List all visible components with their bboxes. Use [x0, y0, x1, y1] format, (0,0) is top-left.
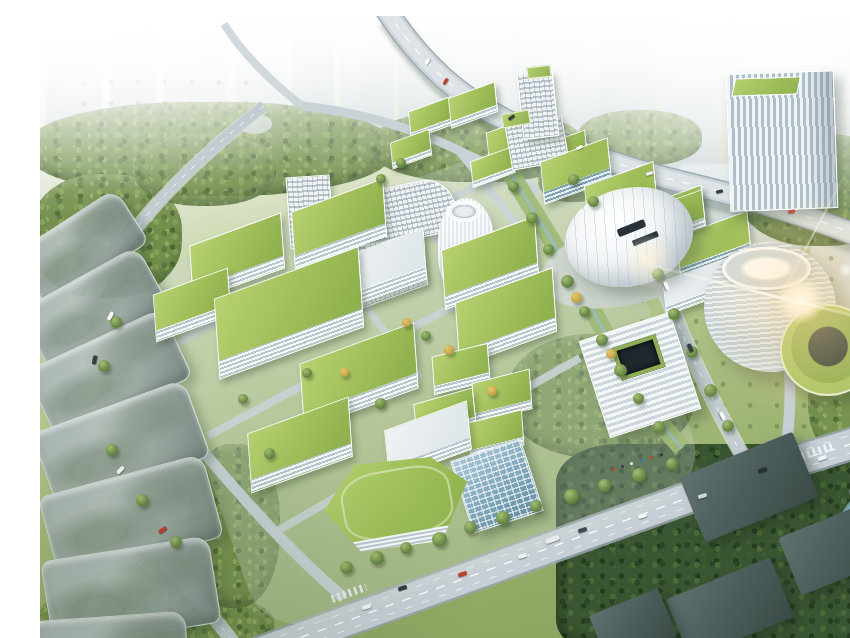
pedestrian — [630, 462, 633, 465]
glass-slab-green-roof — [676, 210, 752, 281]
ghost-tower — [164, 42, 226, 170]
tree — [370, 551, 384, 565]
office-slab — [663, 254, 740, 316]
highway-inner — [386, 16, 850, 252]
dome-hall — [554, 174, 704, 301]
green-roof-office — [153, 267, 232, 342]
green-roof-pod — [390, 128, 432, 169]
tree — [264, 448, 275, 459]
tree — [614, 364, 627, 377]
boulevard-median-line — [216, 430, 850, 638]
tree — [633, 393, 644, 404]
linear-park — [506, 166, 682, 448]
tree — [136, 494, 149, 507]
green-roof-office — [247, 396, 353, 493]
trees-bottom-left — [40, 588, 274, 638]
hexagonal-lawn-building — [317, 446, 476, 560]
car — [818, 455, 828, 462]
tree — [432, 532, 447, 547]
tree — [579, 306, 590, 317]
car — [578, 527, 588, 534]
forest-band-east — [738, 134, 850, 246]
park-stream — [506, 166, 682, 448]
ghost-tower — [810, 224, 850, 372]
massing-slab — [40, 535, 222, 638]
highway-shadow — [390, 19, 850, 261]
tree — [106, 444, 118, 456]
car — [458, 571, 468, 578]
autumn-tree — [606, 349, 616, 359]
folded-pavilion — [432, 343, 491, 396]
skyline-layer — [40, 16, 850, 638]
car — [638, 513, 648, 520]
sun-core — [776, 276, 824, 324]
boulevard-lane-line — [219, 438, 850, 638]
aerial-render: Aerial rendering of an eco science-busin… — [40, 16, 850, 638]
ghost-tower — [110, 20, 156, 166]
ghost-tower — [560, 50, 606, 142]
pedestrian — [612, 468, 615, 471]
ghost-tower — [340, 46, 394, 152]
east-road — [650, 252, 746, 462]
glass-slab-green-roof — [584, 161, 658, 231]
canal — [804, 440, 850, 574]
terrace-lawn — [501, 110, 531, 129]
tree — [376, 174, 386, 184]
residential-slab — [336, 238, 429, 316]
autumn-tree — [402, 318, 411, 327]
stepped-tower — [517, 70, 560, 139]
trees-north-dome — [538, 158, 608, 202]
ghost-tower — [398, 30, 448, 148]
pedestrian — [660, 453, 663, 456]
green-roof-office — [299, 322, 418, 430]
crosswalk — [332, 587, 366, 599]
forest-road — [224, 24, 302, 106]
intersection-north-arm — [784, 354, 790, 464]
tree — [722, 420, 734, 432]
canal-bank — [804, 440, 850, 574]
tree — [704, 384, 717, 397]
lens-flare-streak — [779, 164, 850, 297]
forest-highway-north — [578, 110, 702, 166]
boulevard-casing — [216, 430, 850, 638]
elliptical-tower — [438, 198, 494, 298]
tree — [632, 468, 646, 482]
green-roof-pod — [448, 81, 498, 129]
bus — [545, 535, 561, 545]
car — [646, 171, 654, 176]
ghost-tower — [46, 46, 102, 164]
lens-flare-streak — [641, 262, 850, 326]
sun-glow — [692, 190, 850, 420]
massing-slab — [40, 188, 150, 308]
forest-left-mid — [134, 134, 276, 206]
southwest-branch-road — [70, 536, 136, 638]
ghost-tower — [236, 56, 288, 160]
car — [788, 209, 795, 213]
terrain-layer — [40, 16, 850, 638]
green-roof-pod — [540, 129, 588, 174]
car — [518, 553, 528, 560]
crosswalk — [796, 446, 834, 458]
car — [92, 355, 98, 365]
ghost-tower — [740, 194, 800, 324]
buildings-layer — [40, 16, 850, 638]
car — [442, 78, 448, 86]
autumn-tree — [571, 292, 582, 303]
dome-highlight — [618, 230, 680, 292]
green-roof-pod — [486, 114, 540, 165]
tree — [496, 511, 510, 525]
courtyard-cube — [579, 312, 702, 439]
car — [508, 114, 515, 120]
tree — [588, 196, 599, 207]
boulevard-lane-line — [213, 422, 850, 638]
left-road-centerline — [75, 106, 264, 638]
car — [758, 467, 768, 474]
autumn-tree — [487, 386, 497, 396]
trees-bottom-dark — [556, 444, 850, 638]
green-roof-pod — [408, 96, 454, 140]
green-roof-office — [189, 212, 285, 302]
crosswalk — [130, 556, 154, 572]
green-roof-office — [441, 216, 539, 310]
foreground-layer — [40, 16, 850, 638]
car — [424, 58, 430, 66]
stepped-tower-base — [504, 115, 569, 170]
folded-pavilion — [468, 409, 525, 459]
amphitheater-block — [353, 174, 461, 249]
car — [362, 604, 372, 611]
massing-slab — [40, 379, 211, 511]
car — [687, 343, 694, 353]
campus-street — [168, 174, 502, 348]
tree — [238, 394, 248, 404]
tree — [652, 268, 664, 280]
tree — [396, 158, 406, 168]
forest-left-strip — [40, 174, 182, 298]
campus-street — [272, 358, 580, 534]
dark-massing-box — [778, 498, 850, 595]
massing-slab — [40, 245, 170, 372]
campus-cross-street — [392, 186, 502, 330]
tree — [653, 421, 665, 433]
dark-massing-box — [589, 588, 677, 638]
folded-pavilion — [413, 387, 477, 442]
ghost-tower — [452, 54, 508, 150]
tree — [526, 212, 538, 224]
green-roof-office — [455, 267, 557, 367]
campus-ground-wash — [139, 120, 710, 638]
hex-cross-road — [200, 448, 344, 598]
massing-slab — [40, 611, 191, 638]
tree — [400, 542, 412, 554]
car — [663, 281, 670, 291]
terrace-lawn — [526, 65, 551, 79]
tree — [98, 360, 110, 372]
lighting-layer — [40, 16, 850, 638]
campus-mid-road — [458, 150, 536, 254]
car — [576, 145, 584, 151]
autumn-tree — [444, 345, 454, 355]
dome-plaza — [531, 199, 730, 325]
car — [116, 465, 125, 474]
blue-glass-cube — [450, 438, 544, 533]
campus-north-road — [302, 106, 538, 192]
road-network — [40, 16, 850, 638]
pedestrian — [640, 459, 643, 462]
tree — [666, 458, 678, 470]
folded-pavilion — [471, 368, 532, 423]
tree — [340, 561, 353, 574]
office-slab — [384, 400, 472, 479]
glass-slab-green-roof — [630, 184, 706, 255]
ghost-tower — [724, 22, 782, 230]
car — [719, 411, 727, 421]
campus-cross-street — [298, 224, 420, 378]
forest-clearing — [238, 114, 272, 134]
tree — [375, 398, 386, 409]
atmospheric-haze — [40, 16, 850, 638]
lawn-east — [634, 250, 850, 454]
ground-decoration-layer — [40, 16, 850, 638]
tree — [421, 331, 431, 341]
car — [716, 189, 723, 193]
east-road-centerline — [650, 252, 746, 462]
grass-bottom-left — [68, 472, 220, 606]
tree — [561, 275, 574, 288]
ghost-tower — [470, 124, 530, 186]
tree — [543, 244, 554, 255]
left-road-casing — [75, 106, 264, 638]
residential-tower — [325, 202, 378, 285]
ghost-tower — [680, 164, 750, 284]
ring-lawn-building — [780, 304, 850, 396]
tree — [302, 368, 312, 378]
ghost-tower — [600, 16, 656, 166]
east-road-casing — [650, 252, 746, 462]
pedestrian — [650, 456, 653, 459]
massing-slab — [40, 453, 224, 580]
car — [158, 526, 168, 534]
meadow-top-left — [76, 74, 262, 138]
tree — [668, 308, 680, 320]
tree — [530, 500, 542, 512]
campus-street — [208, 264, 538, 436]
dark-massing-box — [666, 557, 794, 638]
highway-casing — [386, 16, 850, 252]
tree — [464, 521, 477, 534]
tree — [110, 316, 122, 328]
glass-cylinder — [704, 242, 836, 372]
ghost-tower — [658, 40, 720, 210]
roundabout — [458, 204, 474, 220]
tree — [598, 479, 611, 492]
trees-boulevard-north — [508, 334, 694, 458]
car — [107, 311, 115, 321]
forest-band-center — [370, 110, 584, 182]
massing-slab — [40, 308, 193, 440]
tree — [170, 536, 182, 548]
highway-centerline — [386, 16, 850, 252]
tree — [564, 489, 579, 504]
tree — [508, 181, 519, 192]
corner-vignette — [40, 16, 850, 638]
car — [698, 493, 708, 500]
autumn-tree — [340, 368, 349, 377]
tree — [686, 346, 698, 358]
green-roof-block — [644, 189, 706, 247]
residential-tower — [286, 175, 335, 250]
glass-slab-green-roof — [540, 137, 612, 205]
left-road — [75, 106, 264, 638]
tree — [596, 334, 608, 346]
crosswalk — [746, 472, 782, 484]
highway-deck — [386, 16, 850, 252]
ghost-tower — [508, 22, 560, 150]
pedestrian — [621, 465, 624, 468]
slab-tower — [726, 70, 839, 212]
green-roof-office — [291, 178, 387, 270]
forest-band-west — [40, 102, 392, 196]
ghost-tower — [784, 50, 846, 248]
office-slab — [339, 228, 427, 311]
glass-slab-green-roof — [596, 212, 654, 269]
lens-flare-dot — [838, 262, 850, 278]
scene-caption: Aerial rendering of an eco science-busin… — [40, 16, 41, 17]
tree — [568, 174, 579, 185]
green-roof-pod — [470, 146, 516, 188]
dark-massing-box — [679, 432, 818, 543]
ghost-tower — [190, 104, 236, 176]
trees-east-edge — [808, 346, 850, 458]
trees-mid-left — [188, 444, 280, 608]
ghost-tower — [292, 16, 334, 134]
boulevard-deck — [216, 430, 850, 638]
green-roof-office — [214, 246, 364, 380]
car — [398, 585, 408, 592]
ghost-tower — [846, 74, 850, 294]
ghost-tower — [596, 134, 646, 254]
